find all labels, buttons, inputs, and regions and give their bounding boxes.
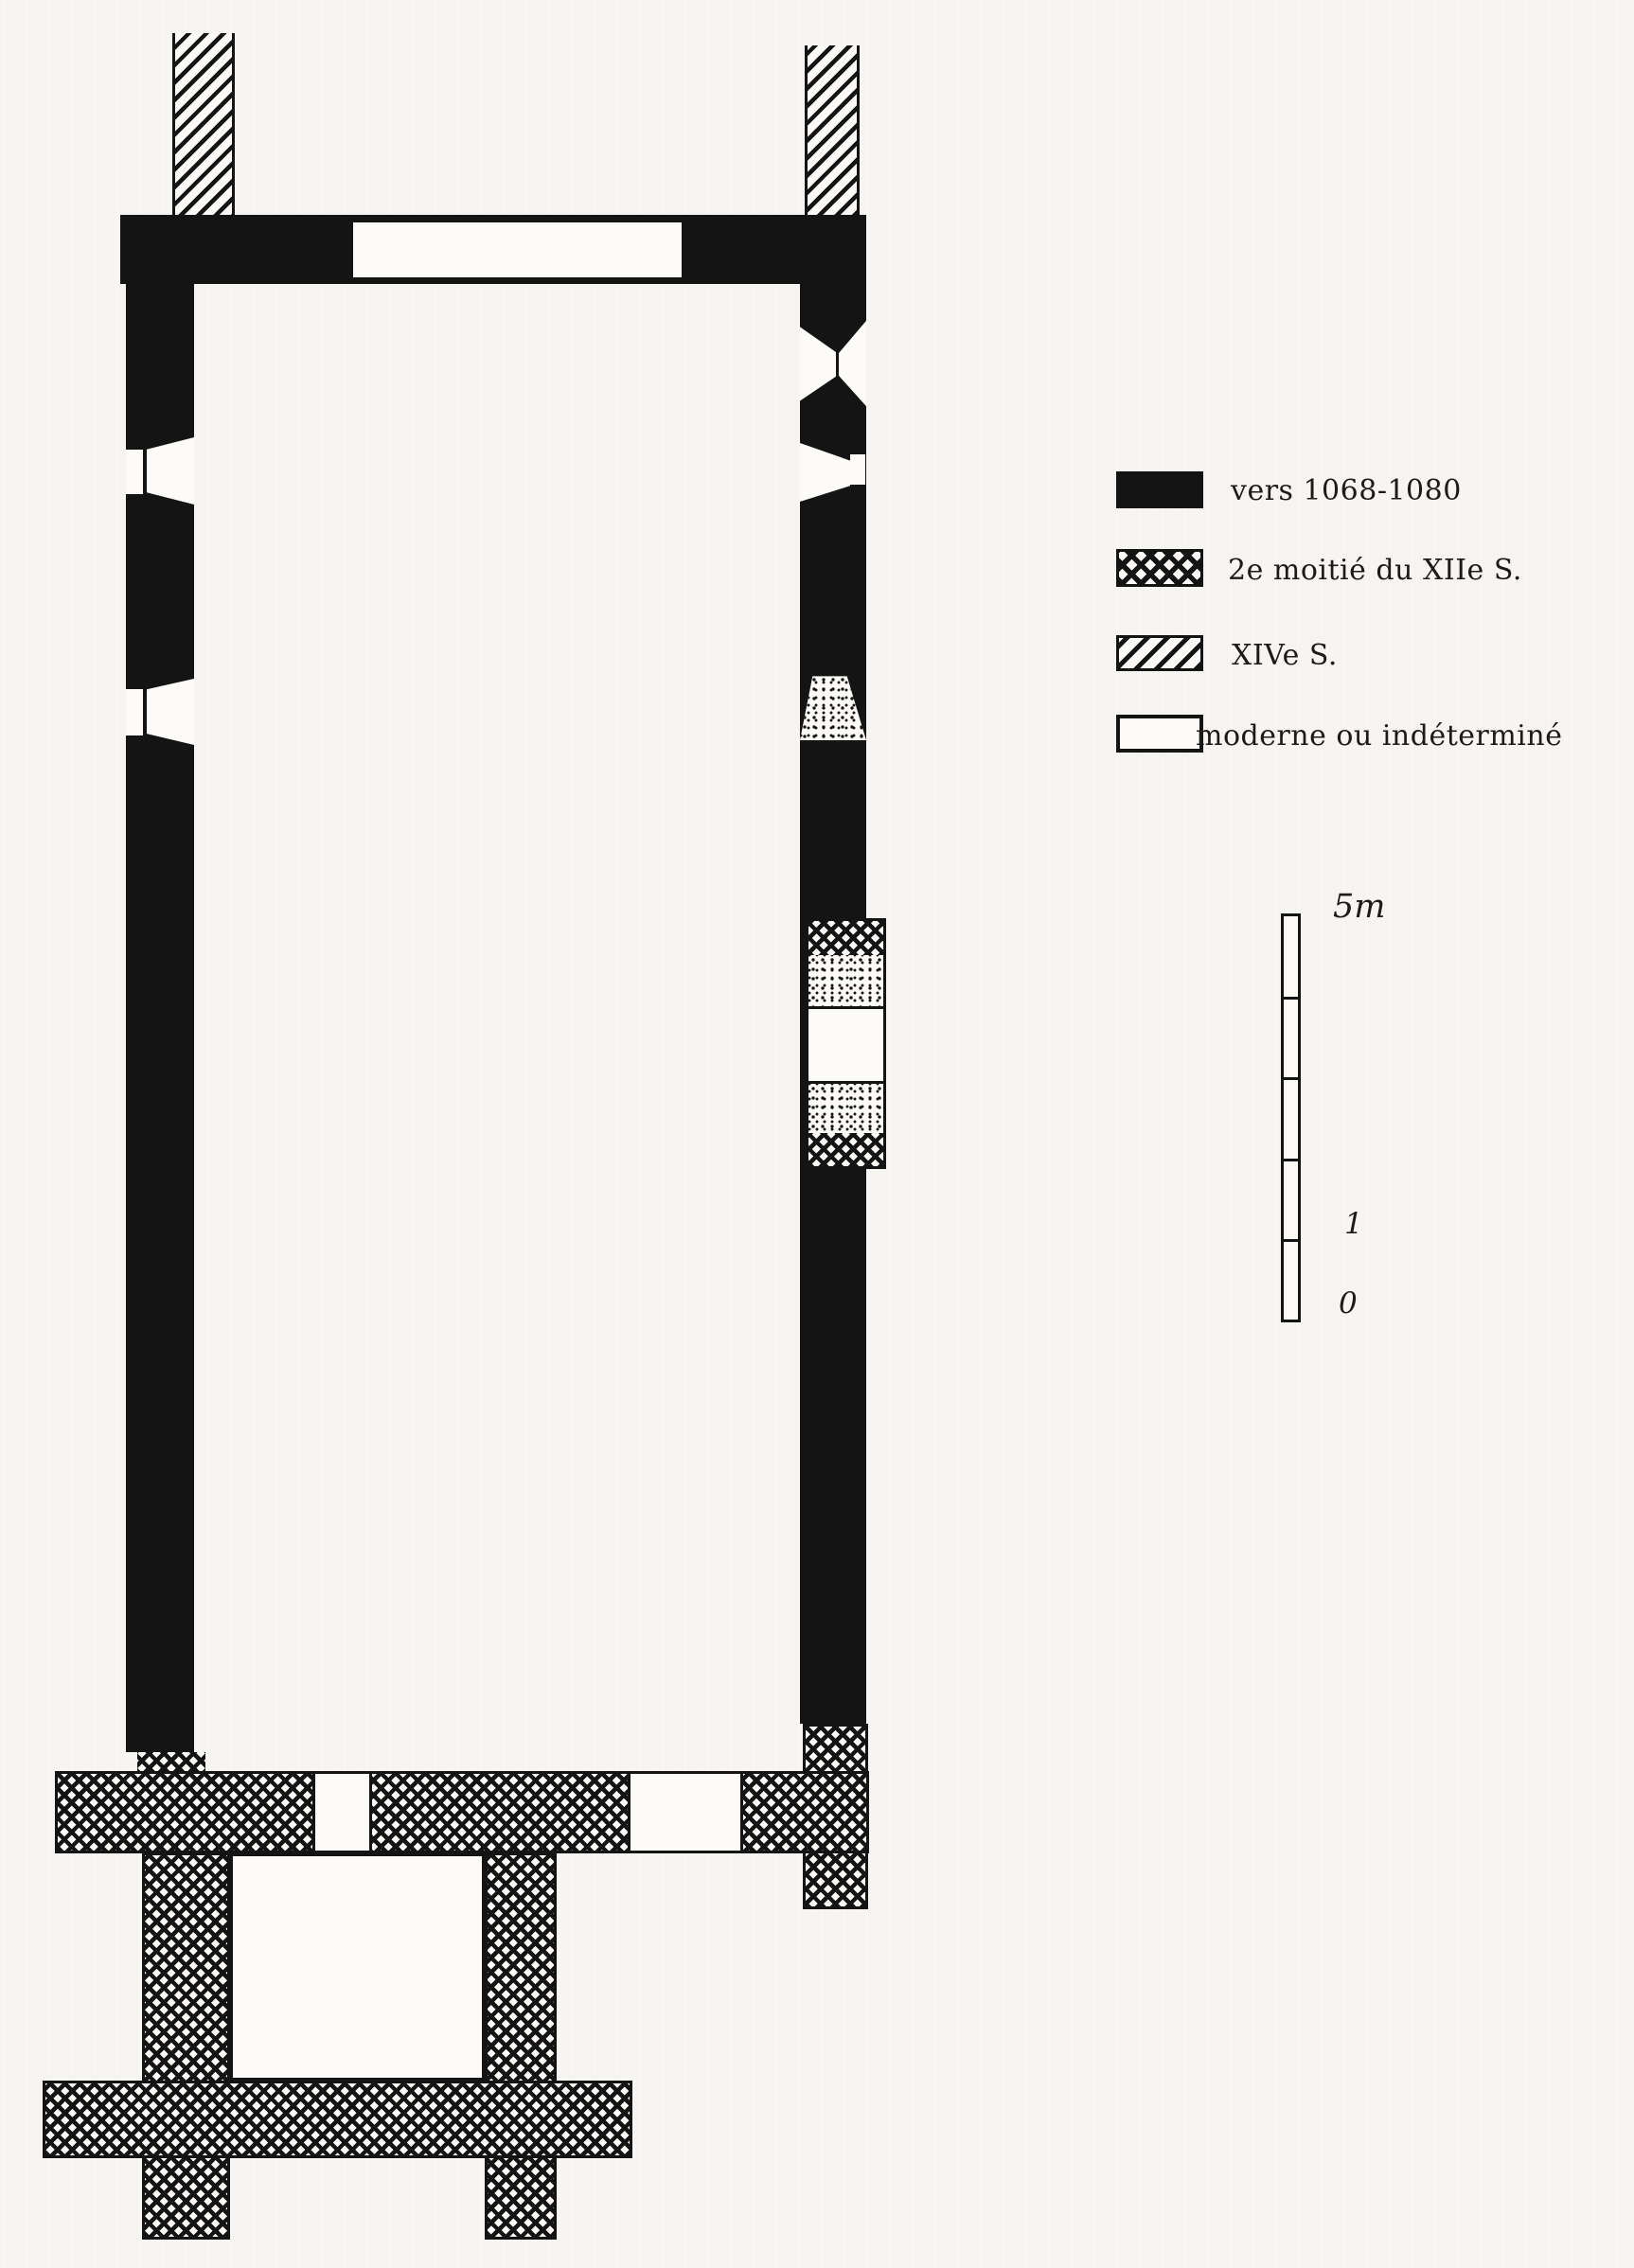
scale-bar-tick — [1284, 997, 1298, 1000]
scale-bar-tick — [1284, 1239, 1298, 1242]
scale-label-5m: 5m — [1333, 891, 1385, 924]
church-plan-sheet: vers 1068-1080 2e moitié du XIIe S. XIVe… — [0, 0, 1634, 2268]
scale-bar-rule — [1281, 913, 1301, 1322]
scale-bar-tick — [1284, 1159, 1298, 1161]
scale-label-1: 1 — [1344, 1210, 1363, 1239]
scale-label-0: 0 — [1339, 1289, 1358, 1319]
scale-bar: 5m 1 0 — [0, 0, 1634, 2268]
scale-bar-tick — [1284, 1077, 1298, 1080]
